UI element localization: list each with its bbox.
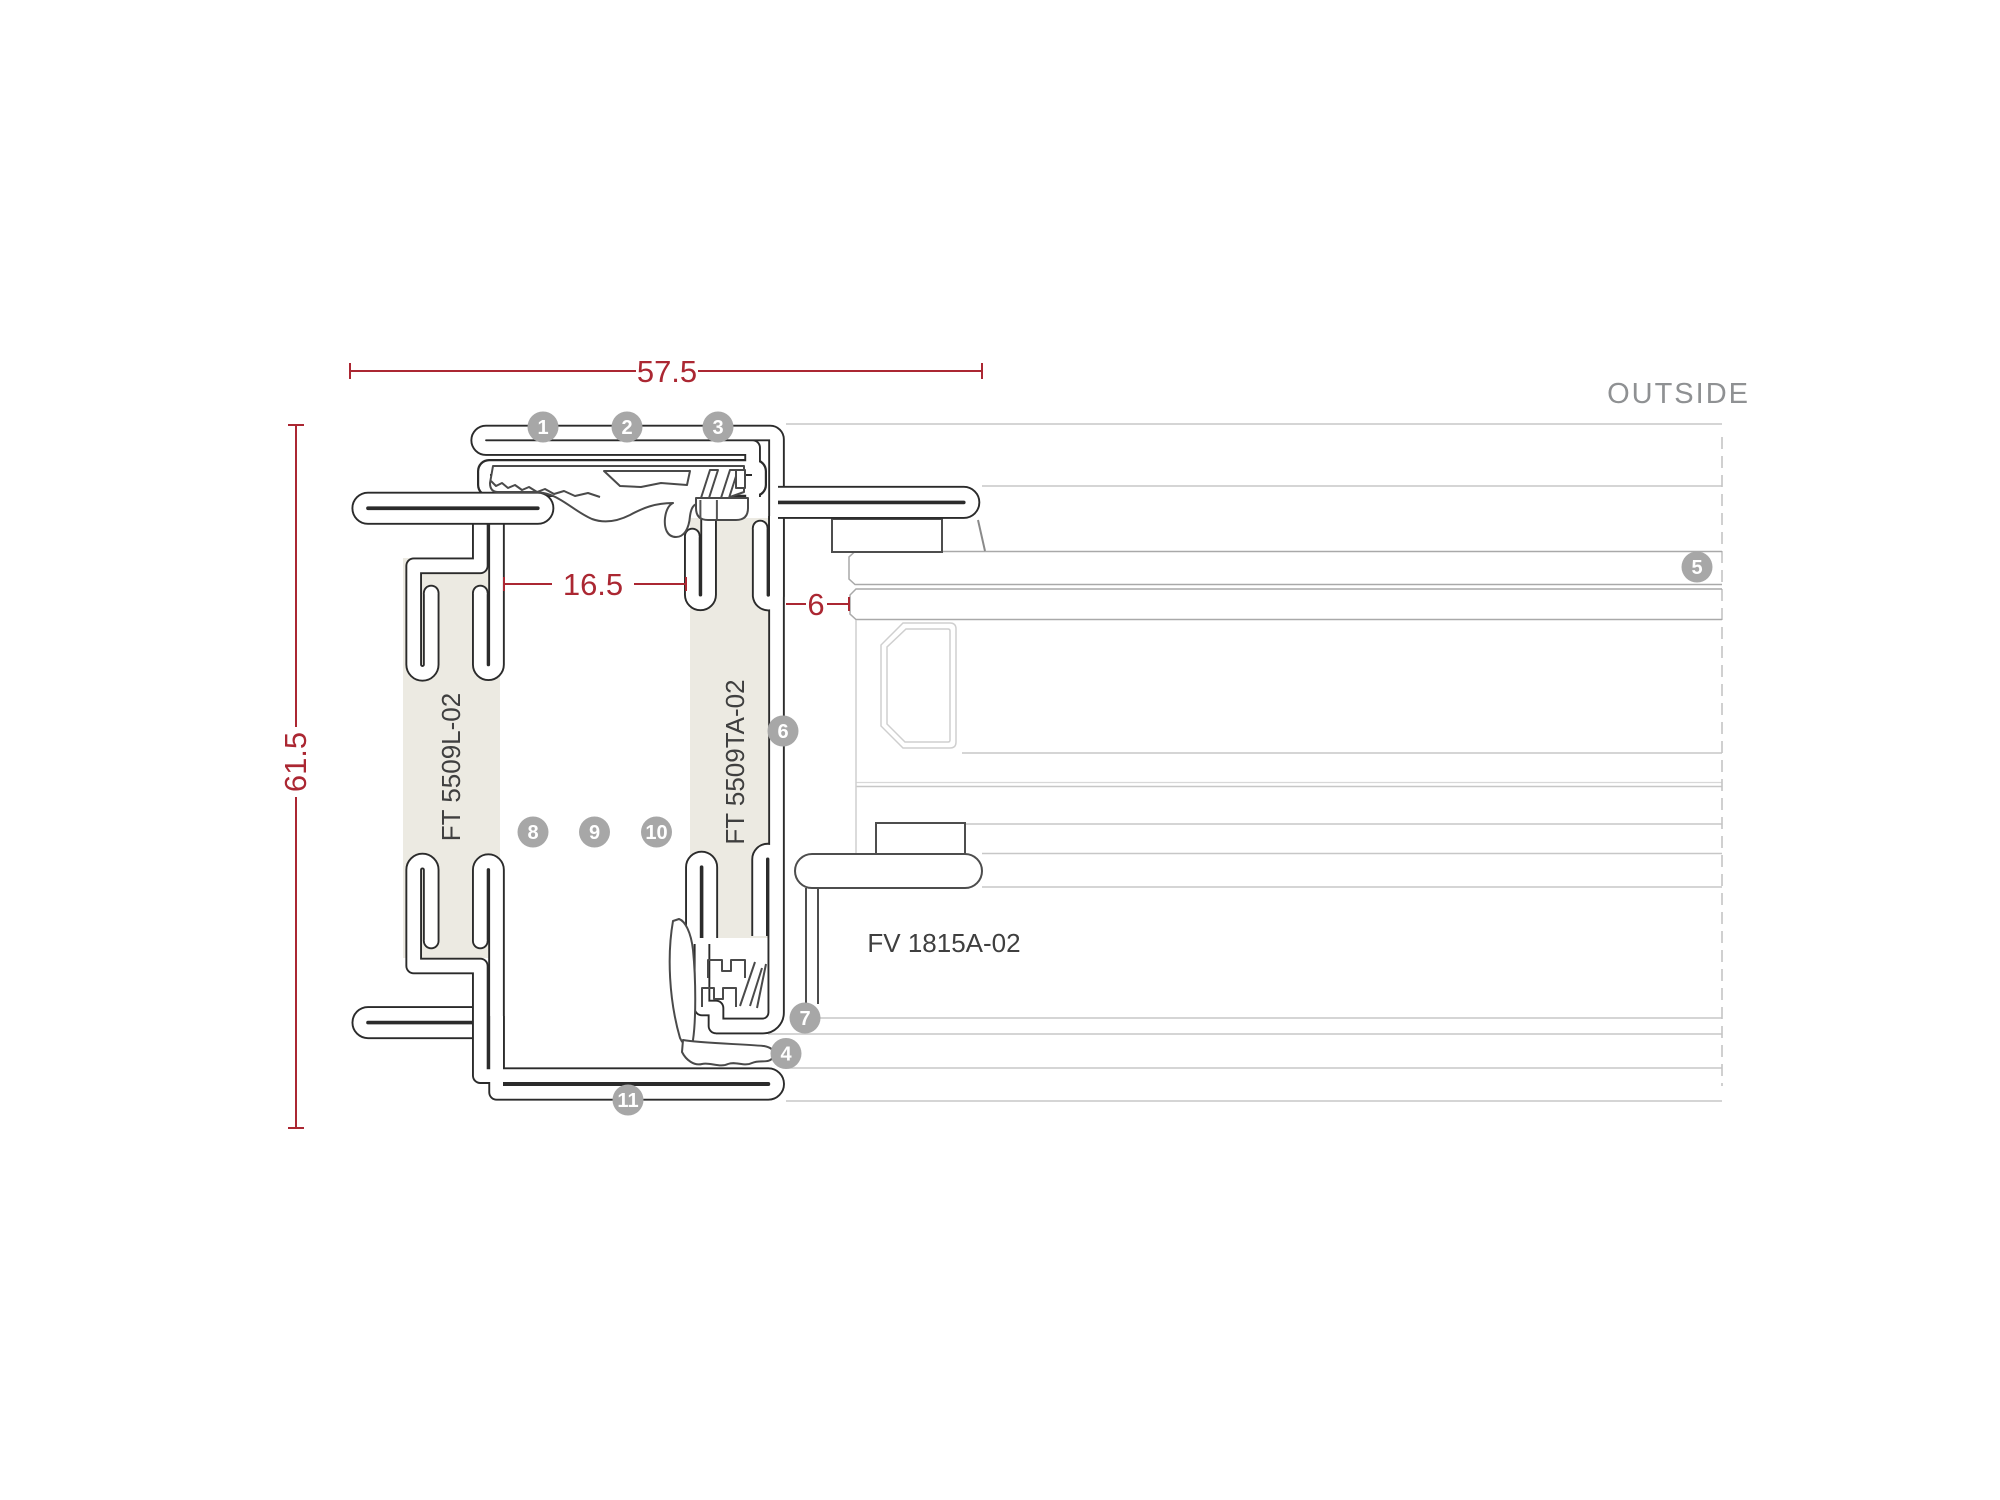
svg-text:6: 6	[777, 721, 788, 743]
svg-text:16.5: 16.5	[563, 567, 623, 602]
svg-text:61.5: 61.5	[278, 732, 313, 792]
svg-text:FT 5509TA-02: FT 5509TA-02	[720, 679, 750, 844]
svg-text:1: 1	[537, 417, 548, 439]
svg-text:10: 10	[645, 822, 667, 844]
svg-text:9: 9	[589, 822, 600, 844]
svg-text:OUTSIDE: OUTSIDE	[1607, 378, 1750, 410]
svg-text:FT 5509L-02: FT 5509L-02	[436, 693, 466, 841]
svg-text:57.5: 57.5	[637, 354, 697, 389]
svg-text:4: 4	[780, 1044, 792, 1066]
svg-text:11: 11	[617, 1090, 638, 1112]
svg-text:6: 6	[807, 587, 824, 622]
svg-text:5: 5	[1691, 557, 1702, 579]
svg-text:8: 8	[527, 822, 538, 844]
svg-text:3: 3	[712, 417, 723, 439]
svg-text:FV 1815A-02: FV 1815A-02	[867, 928, 1020, 958]
svg-text:7: 7	[799, 1008, 810, 1030]
svg-text:2: 2	[621, 417, 632, 439]
